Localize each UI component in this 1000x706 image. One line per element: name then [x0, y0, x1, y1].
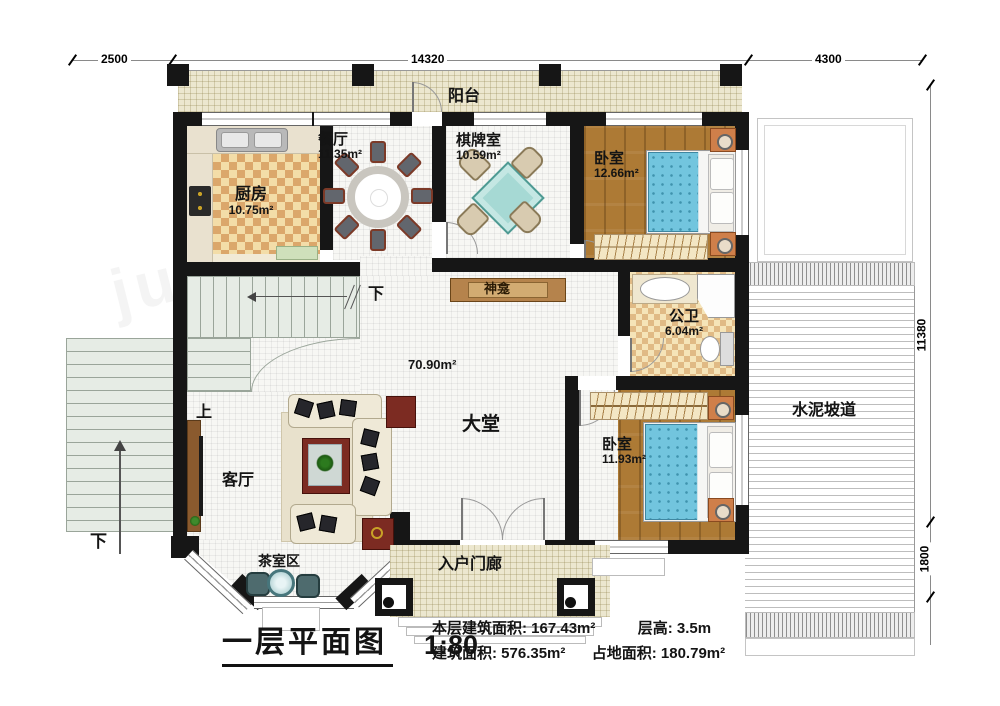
- bathroom-label-group: 公卫 6.04m²: [648, 308, 720, 339]
- shrine-label: 神龛: [484, 282, 510, 297]
- hall-area: 70.90m²: [408, 358, 456, 373]
- terrace-outline-inner: [764, 125, 906, 255]
- toilet-tank: [720, 332, 734, 366]
- bed-mattress-bottom: [645, 424, 705, 520]
- chess-west-wall: [432, 126, 446, 222]
- balcony-column: [720, 64, 742, 86]
- sofa-pillow: [319, 515, 338, 534]
- stairs-left-flight: [187, 338, 251, 392]
- bedroom-bottom-label: 卧室: [602, 436, 646, 453]
- chess-label-group: 棋牌室 10.59m²: [456, 132, 501, 163]
- bedroom-bottom-area: 11.93m²: [602, 453, 646, 467]
- hall-opening-floor: [360, 256, 432, 276]
- entry-porch-label: 入户门廊: [438, 556, 502, 574]
- wardrobe-top: [594, 234, 708, 260]
- nightstand: [710, 128, 736, 152]
- tea-area-label: 茶室区: [258, 553, 300, 569]
- bedroom-bottom-door-opening: [578, 376, 616, 390]
- dim-top-left: 2500: [98, 52, 131, 66]
- kitchen-window: [202, 112, 312, 126]
- side-table-rosette: [371, 527, 383, 539]
- chess-room-window: [474, 112, 546, 126]
- footprint-value: 180.79m²: [661, 645, 725, 662]
- balcony-column: [539, 64, 561, 86]
- tea-table: [267, 569, 295, 597]
- story-height-value: 3.5m: [677, 620, 711, 637]
- bathroom-sink: [640, 277, 690, 301]
- sofa-pillow: [361, 453, 380, 472]
- pillow: [709, 432, 733, 468]
- balcony-column: [167, 64, 189, 86]
- kitchen-sink-basin: [221, 132, 249, 148]
- exterior-stairs-arrow-head: [114, 440, 126, 451]
- chess-label: 棋牌室: [456, 132, 501, 149]
- floor-area-value: 167.43m²: [531, 620, 595, 637]
- entry-door-leaf-left: [461, 498, 463, 540]
- bedroom-top-east-window: [735, 150, 749, 235]
- sofa-pillow: [339, 399, 357, 417]
- bathroom-area: 6.04m²: [648, 325, 720, 339]
- total-area-value: 576.35m²: [501, 645, 565, 662]
- bedroom-bottom-sill: [592, 558, 665, 576]
- plant: [316, 454, 334, 472]
- bedroom-top-south-wall: [584, 258, 749, 272]
- dining-chair: [370, 229, 386, 251]
- kitchen-mat: [276, 246, 318, 260]
- exterior-stairs-down-label: 下: [90, 532, 107, 552]
- bathroom-label: 公卫: [648, 308, 720, 325]
- ramp-surface: [745, 286, 915, 612]
- bedroom-bottom-door-leaf: [579, 390, 581, 426]
- dining-area: 11.35m²: [318, 148, 362, 162]
- ramp-base-strip: [745, 638, 915, 656]
- balcony-door-opening: [412, 112, 442, 126]
- toilet-bowl: [700, 336, 720, 362]
- dining-chair: [411, 188, 433, 204]
- ramp-hatch-bottom: [745, 612, 915, 638]
- stairs-direction-arrow: [247, 292, 256, 302]
- footprint-label: 占地面积:: [592, 645, 657, 662]
- bedroom-top-label-group: 卧室 12.66m²: [594, 150, 639, 181]
- bedroom-bottom-east-window: [735, 415, 749, 505]
- bedroom-top-area: 12.66m²: [594, 167, 639, 181]
- bathroom-door-leaf: [630, 338, 632, 372]
- stats-line-2: 建筑面积: 576.35m² 占地面积: 180.79m²: [432, 645, 725, 662]
- bedroom-top-west-wall: [570, 126, 584, 244]
- bedroom-bottom-west-wall: [565, 390, 579, 554]
- dimension-line-top: [73, 60, 923, 61]
- exterior-stairs-arrow-line: [119, 450, 121, 554]
- total-area-label: 建筑面积:: [432, 645, 497, 662]
- bathroom-west-wall: [618, 272, 630, 336]
- nightstand: [710, 232, 736, 256]
- kitchen-label: 厨房: [205, 186, 297, 204]
- stairs-down-label: 下: [368, 286, 384, 304]
- kitchen-label-group: 厨房 10.75m²: [205, 186, 297, 218]
- nightstand: [708, 396, 734, 420]
- wardrobe-bottom: [590, 392, 708, 420]
- dining-label: 餐厅: [318, 131, 362, 148]
- bedroom-top-window: [606, 112, 702, 126]
- chess-door-leaf: [446, 222, 448, 254]
- hall-label: 大堂: [462, 414, 500, 436]
- dining-chair: [370, 141, 386, 163]
- dim-top-middle: 14320: [408, 52, 447, 66]
- dining-table-center: [370, 189, 388, 207]
- stats-line-1: 本层建筑面积: 167.43m² 层高: 3.5m: [432, 620, 711, 637]
- tea-chair: [296, 574, 320, 598]
- wall-west: [173, 126, 187, 550]
- plant-small: [190, 516, 200, 526]
- nightstand: [708, 498, 734, 522]
- side-table: [386, 396, 416, 428]
- dim-right-lower: 1800: [917, 543, 931, 576]
- bedroom-top-label: 卧室: [594, 150, 639, 167]
- dining-chair: [323, 188, 345, 204]
- bedroom-bottom-label-group: 卧室 11.93m²: [602, 436, 646, 467]
- floor-area-label: 本层建筑面积:: [432, 620, 527, 637]
- kitchen-south-wall: [173, 262, 360, 276]
- story-height-label: 层高:: [638, 620, 673, 637]
- tv: [199, 436, 203, 516]
- pillow: [710, 158, 734, 190]
- exterior-stairs: [66, 338, 176, 532]
- dim-top-right: 4300: [812, 52, 845, 66]
- stairs-top-flight: [187, 276, 360, 338]
- ramp-hatch-top: [745, 262, 915, 286]
- chess-area: 10.59m²: [456, 149, 501, 163]
- kitchen-area: 10.75m²: [205, 204, 297, 218]
- dining-window: [314, 112, 390, 126]
- porch-column-dot: [383, 597, 394, 608]
- kitchen-sink-basin: [254, 132, 282, 148]
- ramp-label: 水泥坡道: [792, 402, 856, 420]
- drawing-title: 一层平面图: [222, 626, 393, 667]
- balcony-door-leaf: [412, 82, 414, 112]
- dim-right-upper: 11380: [914, 316, 928, 355]
- sofa-pillow: [317, 401, 336, 420]
- balcony-column: [352, 64, 374, 86]
- floor-plan-canvas: juni 2500 14320 4300 11380 1800 水泥坡道 下 阳…: [0, 0, 1000, 706]
- entry-door-leaf-right: [543, 498, 545, 540]
- balcony-label: 阳台: [448, 88, 480, 106]
- living-room-label: 客厅: [222, 472, 254, 490]
- porch-column-dot: [565, 597, 576, 608]
- pillow: [710, 192, 734, 224]
- chess-south-wall: [432, 258, 584, 272]
- dining-label-group: 餐厅 11.35m²: [318, 131, 362, 162]
- stairs-direction-line: [255, 296, 347, 297]
